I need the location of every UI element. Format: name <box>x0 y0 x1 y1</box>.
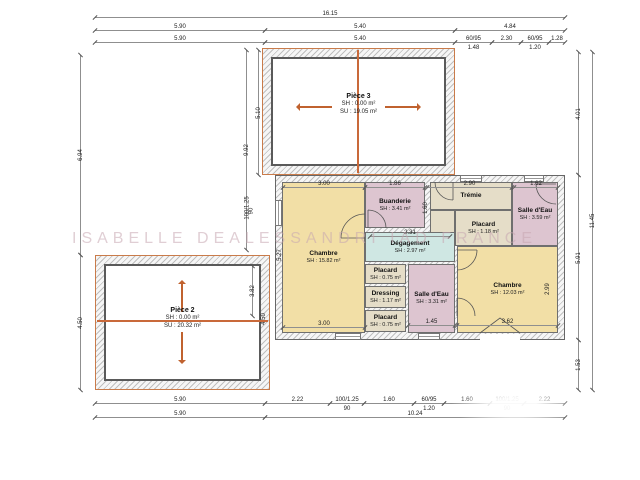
dim-right-3: 1.53 <box>578 340 579 390</box>
dim-top3-5: 60/951.20 <box>521 42 549 43</box>
dim-bot1-1: 5.90 <box>95 403 265 404</box>
dim-top-total: 16.15 <box>95 17 565 18</box>
buanderie-name: Buanderie <box>379 198 411 206</box>
dim-bot1-2: 2.22 <box>265 403 330 404</box>
room-placard-top: Placard SH : 0.75 m² <box>365 264 406 284</box>
dim-top3-1: 5.90 <box>95 42 265 43</box>
room-chambre-left: Chambre SH : 15.82 m² <box>282 182 365 333</box>
dim-bot1-4: 1.60 <box>364 403 414 404</box>
dim-right-2: 5.91 <box>578 175 579 340</box>
dim-aux-door-sub: 90 <box>248 208 254 215</box>
dim-top2-2: 5.40 <box>265 30 455 31</box>
dim-top2-3: 4.84 <box>455 30 565 31</box>
piece3-sh: SH : 0.00 m² <box>271 101 446 109</box>
piece2-label: Pièce 2 SH : 0.00 m² SU : 20.32 m² <box>104 306 261 330</box>
dim-inner-top-3: 2.90 <box>427 187 512 188</box>
piece2-sh: SH : 0.00 m² <box>104 315 261 323</box>
dim-inner-bot-3: 3.62 <box>457 325 558 326</box>
placard-tremie-name: Placard <box>472 221 496 229</box>
dim-aux-510: 5.10 <box>258 50 259 175</box>
window-chambre-left <box>275 200 282 226</box>
dim-right-total: 11.45 <box>592 52 593 390</box>
room-buanderie: Buanderie SH : 3.41 m² <box>365 182 425 228</box>
watermark-logo-blob <box>452 383 577 428</box>
piece3-su: SU : 19.05 m² <box>271 109 446 117</box>
dim-inner-bot-2: 1.45 <box>408 325 455 326</box>
dim-left-2: 4.50 <box>80 255 81 390</box>
placard-top-name: Placard <box>374 267 398 275</box>
piece2-su: SU : 20.32 m² <box>104 323 261 331</box>
room-placard-bottom: Placard SH : 0.75 m² <box>365 310 406 332</box>
floor-plan: 16.15 5.90 5.40 4.84 5.90 5.40 60/951.48… <box>0 0 640 480</box>
dim-bot2-1: 5.90 <box>95 417 265 418</box>
salle-eau-bottom-sh: SH : 3.31 m² <box>416 299 447 306</box>
dim-top3-3: 60/951.48 <box>455 42 492 43</box>
dim-chambre-right-h: 2.99 <box>545 283 551 295</box>
chambre-right-name: Chambre <box>493 282 521 290</box>
dressing-sh: SH : 1.17 m² <box>370 298 401 305</box>
dim-top3-4: 2.30 <box>492 42 521 43</box>
french-door-gap <box>480 334 520 340</box>
placard-bottom-sh: SH : 0.75 m² <box>370 322 401 329</box>
chambre-right-sh: SH : 12.03 m² <box>491 290 525 297</box>
piece2-name: Pièce 2 <box>104 306 261 315</box>
salle-eau-top-name: Salle d'Eau <box>518 207 552 215</box>
dim-aux-992: 9.92 <box>246 50 247 250</box>
dim-piece2-450: 4.50 <box>261 313 267 325</box>
chambre-left-name: Chambre <box>309 250 337 258</box>
buanderie-sh: SH : 3.41 m² <box>380 206 411 213</box>
dim-bot1-3: 100/1.2590 <box>330 403 364 404</box>
dim-bot1-5: 60/951.20 <box>414 403 444 404</box>
watermark-text: ISABELLE DEALESSANDRI IAD FRANCE <box>72 230 537 248</box>
room-dressing: Dressing SH : 1.17 m² <box>365 286 406 308</box>
dim-buanderie-tremie: 1.60 <box>423 202 429 214</box>
salle-eau-bottom-name: Salle d'Eau <box>414 291 448 299</box>
dim-right-1: 4.01 <box>578 52 579 175</box>
dressing-name: Dressing <box>372 290 400 298</box>
dim-chambre-left-h: 5.27 <box>277 249 283 261</box>
dim-left-1: 6.94 <box>80 55 81 255</box>
dim-top3-2: 5.40 <box>265 42 455 43</box>
dim-top3-6: 1.28 <box>549 42 565 43</box>
piece3-name: Pièce 3 <box>271 92 446 101</box>
salle-eau-top-sh: SH : 3.59 m² <box>520 215 551 222</box>
placard-bottom-name: Placard <box>374 314 398 322</box>
tremie-name: Trémie <box>461 192 482 200</box>
dim-inner-bot-1: 3.00 <box>283 327 365 328</box>
dim-inner-top-4: 1.62 <box>514 187 558 188</box>
dim-top2-1: 5.90 <box>95 30 265 31</box>
chambre-left-sh: SH : 15.82 m² <box>307 258 341 265</box>
window-bottom-chambre-left <box>335 333 361 340</box>
placard-top-sh: SH : 0.75 m² <box>370 275 401 282</box>
piece3-label: Pièce 3 SH : 0.00 m² SU : 19.05 m² <box>271 92 446 116</box>
window-bottom-salle-eau <box>418 333 440 340</box>
dim-inner-top-1: 3.00 <box>283 187 365 188</box>
piece2-arrow-down <box>181 332 183 360</box>
degagement-sh: SH : 2.97 m² <box>395 248 426 255</box>
dim-inner-top-2: 1.86 <box>365 187 425 188</box>
